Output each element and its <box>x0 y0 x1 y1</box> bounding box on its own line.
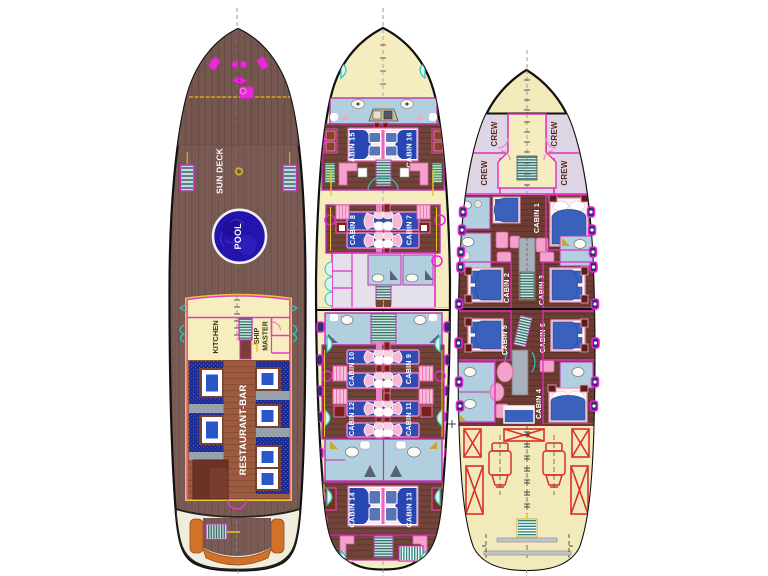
svg-text:CABIN 15: CABIN 15 <box>348 132 357 167</box>
svg-text:CREW: CREW <box>480 160 489 185</box>
svg-text:CABIN 1: CABIN 1 <box>532 203 541 233</box>
svg-text:SUN DECK: SUN DECK <box>215 147 225 194</box>
svg-text:CABIN 12: CABIN 12 <box>347 402 356 436</box>
svg-text:RESTAURANT-BAR: RESTAURANT-BAR <box>238 385 249 476</box>
svg-text:CREW: CREW <box>560 160 569 185</box>
svg-text:CABIN 5: CABIN 5 <box>500 325 509 355</box>
svg-text:CABIN 3: CABIN 3 <box>537 275 546 305</box>
svg-text:CREW: CREW <box>490 121 499 146</box>
svg-text:CABIN 14: CABIN 14 <box>348 492 357 528</box>
svg-text:KITCHEN: KITCHEN <box>211 320 220 353</box>
svg-text:CABIN 13: CABIN 13 <box>405 492 414 527</box>
svg-text:MASTER: MASTER <box>263 321 270 351</box>
svg-text:CREW: CREW <box>550 121 559 146</box>
svg-text:CABIN 16: CABIN 16 <box>405 132 414 167</box>
svg-text:CABIN 4: CABIN 4 <box>534 389 543 419</box>
svg-text:CABIN 9: CABIN 9 <box>404 354 413 384</box>
svg-text:SHIP: SHIP <box>254 328 261 345</box>
svg-text:POOL: POOL <box>233 223 243 250</box>
svg-text:CABIN 2: CABIN 2 <box>502 273 511 303</box>
svg-text:CABIN 7: CABIN 7 <box>405 215 414 245</box>
svg-text:CABIN 10: CABIN 10 <box>347 352 356 386</box>
svg-text:CABIN 11: CABIN 11 <box>404 402 413 436</box>
